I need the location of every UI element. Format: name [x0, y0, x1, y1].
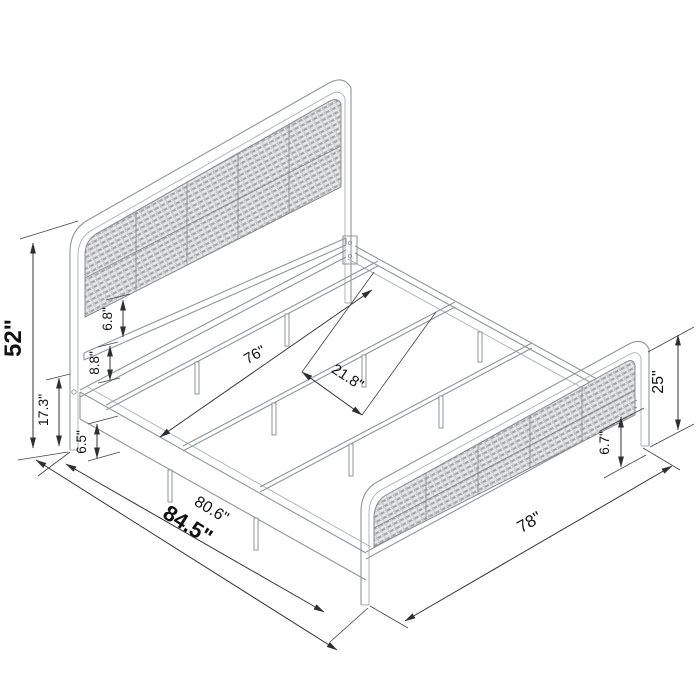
footboard: [361, 341, 649, 605]
support-leg: [254, 518, 258, 550]
left-side-rail-top-edge: [86, 386, 371, 547]
support-leg: [478, 332, 482, 362]
support-leg: [439, 396, 443, 428]
dim-label-crossbar-to-panel: 6.8": [100, 307, 115, 331]
support-leg: [349, 444, 353, 476]
footboard-cane-panel: [374, 361, 635, 547]
dim-label-headboard-leg-height: 17.3": [35, 394, 51, 426]
diagram-canvas: 52" 17.3" 8.8" 6.8" 6.5" 76" 21.8" 80.6"…: [0, 0, 700, 700]
dim-label-footboard-clearance: 6.7": [597, 431, 612, 455]
support-leg: [195, 362, 199, 394]
dim-label-bed-width: 78": [514, 508, 545, 537]
dimension-6-5: 6.5": [74, 416, 120, 461]
dimension-84-5: 84.5": [36, 460, 337, 650]
dim-label-headboard-height: 52": [0, 319, 27, 357]
headboard-cane-panel: [85, 100, 341, 317]
dimension-25: 25": [648, 327, 694, 447]
bed-isometric-diagram: 52" 17.3" 8.8" 6.8" 6.5" 76" 21.8" 80.6"…: [0, 0, 700, 700]
headboard: [70, 80, 351, 450]
dimension-17-3: 17.3": [35, 374, 70, 446]
support-leg: [168, 470, 172, 502]
support-leg: [272, 403, 276, 435]
dim-label-slat-spacing: 21.8": [328, 361, 366, 394]
dimension-78: 78": [370, 448, 680, 628]
dimension-8-8: 8.8": [87, 342, 120, 383]
support-leg: [285, 314, 289, 346]
dim-label-side-rail-depth: 6.5": [74, 430, 89, 454]
dim-label-footboard-height: 25": [650, 370, 667, 393]
dim-label-deck-to-crossbar: 8.8": [87, 351, 102, 375]
dimension-21-8: 21.8": [302, 272, 436, 415]
headboard-bolt: [72, 390, 76, 394]
left-side-rail: [80, 392, 366, 580]
slat-2: [183, 302, 455, 451]
